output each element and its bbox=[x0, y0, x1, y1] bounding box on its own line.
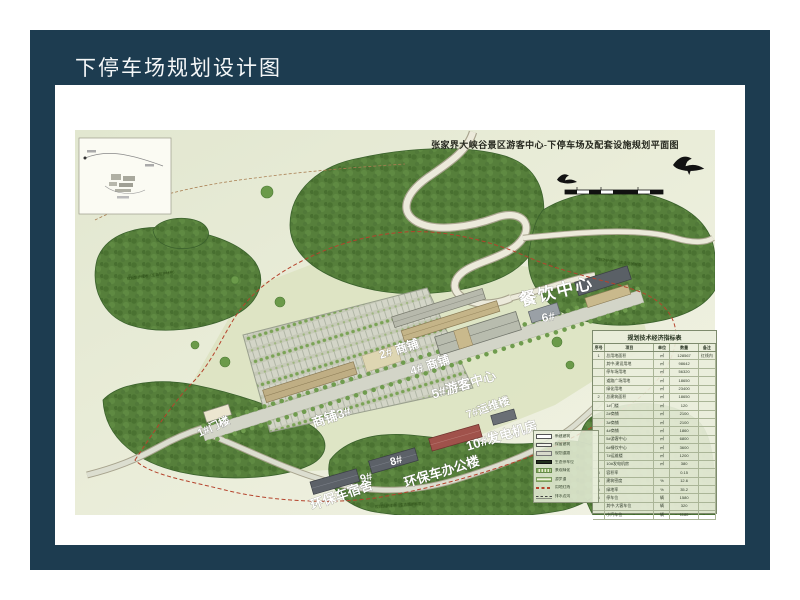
legend-label: 规划道路 bbox=[555, 451, 570, 456]
table-row: 3#商铺 ㎡ 2100 bbox=[593, 419, 716, 427]
table-row: 其中:大客车位 辆 320 bbox=[593, 503, 716, 511]
col-item: 项目 bbox=[605, 344, 654, 351]
legend-swatch bbox=[536, 496, 552, 497]
table-row: 绿化用地 ㎡ 23400 bbox=[593, 386, 716, 394]
table-row: 7#运维楼 ㎡ 1200 bbox=[593, 453, 716, 461]
legend-swatch bbox=[536, 460, 552, 465]
legend-swatch bbox=[536, 487, 552, 489]
legend-item: 景观绿化 bbox=[536, 466, 596, 475]
legend-label: 保留建筑 bbox=[555, 442, 570, 447]
slide: 下停车场规划设计图 bbox=[0, 0, 800, 600]
inset-key-map bbox=[79, 138, 171, 214]
legend-item: 用地红线 bbox=[536, 484, 596, 493]
table-row: 其中:建设用地 ㎡ 98642 bbox=[593, 360, 716, 368]
legend-swatch bbox=[536, 468, 552, 473]
legend-label: 用地红线 bbox=[555, 485, 570, 490]
site-plan-map: 张家界大峡谷景区游客中心-下停车场及配套设施规划平面图 bbox=[75, 130, 715, 515]
col-note: 备注 bbox=[699, 344, 716, 351]
table-row: 1#门楼 ㎡ 120 bbox=[593, 402, 716, 410]
col-no: 序号 bbox=[593, 344, 605, 351]
table-row: 3 容积率 0.15 bbox=[593, 469, 716, 477]
legend-item: 保留建筑 bbox=[536, 441, 596, 450]
legend-label: 新建建筑 bbox=[555, 434, 570, 439]
table-row: 2 总建筑面积 ㎡ 18650 bbox=[593, 394, 716, 402]
legend-swatch bbox=[536, 443, 552, 448]
legend-label: 排水边沟 bbox=[555, 494, 570, 499]
table-row: 5 绿地率 % 35.2 bbox=[593, 486, 716, 494]
label-6: 6# bbox=[541, 309, 557, 325]
table-row: 停车场用地 ㎡ 56320 bbox=[593, 369, 716, 377]
legend-item: 规划道路 bbox=[536, 449, 596, 458]
table-row: 4 建筑密度 % 12.6 bbox=[593, 478, 716, 486]
indicator-table-header: 序号 项目 单位 数量 备注 bbox=[593, 343, 716, 352]
indicator-table: 规划技术经济指标表 序号 项目 单位 数量 备注 1 总用地面积 ㎡ 12856… bbox=[592, 330, 717, 514]
table-row: 2#商铺 ㎡ 2100 bbox=[593, 411, 716, 419]
legend-item: 排水边沟 bbox=[536, 492, 596, 501]
table-row: 道路广场用地 ㎡ 18650 bbox=[593, 377, 716, 385]
legend-label: 游步道 bbox=[555, 477, 566, 482]
table-row: 1 总用地面积 ㎡ 128567 红线内 bbox=[593, 352, 716, 360]
col-unit: 单位 bbox=[654, 344, 670, 351]
slide-title: 下停车场规划设计图 bbox=[75, 52, 575, 82]
map-legend: 新建建筑 保留建筑 规划道路 生态停车位 景观绿化 游步道 用地红线 bbox=[533, 430, 599, 503]
col-qty: 数量 bbox=[670, 344, 698, 351]
table-row: 6 停车位 辆 1580 bbox=[593, 494, 716, 502]
legend-swatch bbox=[536, 477, 552, 482]
map-title: 张家界大峡谷景区游客中心-下停车场及配套设施规划平面图 bbox=[431, 139, 679, 150]
legend-label: 生态停车位 bbox=[555, 460, 574, 465]
legend-item: 新建建筑 bbox=[536, 432, 596, 441]
table-row: 5#游客中心 ㎡ 6800 bbox=[593, 436, 716, 444]
legend-item: 生态停车位 bbox=[536, 458, 596, 467]
table-row: 小汽车位 辆 1180 bbox=[593, 511, 716, 519]
indicator-table-title: 规划技术经济指标表 bbox=[593, 331, 716, 343]
table-row: 4#商铺 ㎡ 1860 bbox=[593, 427, 716, 435]
legend-swatch bbox=[536, 434, 552, 439]
indicator-table-rows: 1 总用地面积 ㎡ 128567 红线内 其中:建设用地 ㎡ 98642 停车场… bbox=[593, 352, 716, 520]
legend-label: 景观绿化 bbox=[555, 468, 570, 473]
table-row: 6#餐饮中心 ㎡ 3600 bbox=[593, 444, 716, 452]
table-row: 10#发电机房 ㎡ 380 bbox=[593, 461, 716, 469]
legend-swatch bbox=[536, 451, 552, 456]
legend-item: 游步道 bbox=[536, 475, 596, 484]
